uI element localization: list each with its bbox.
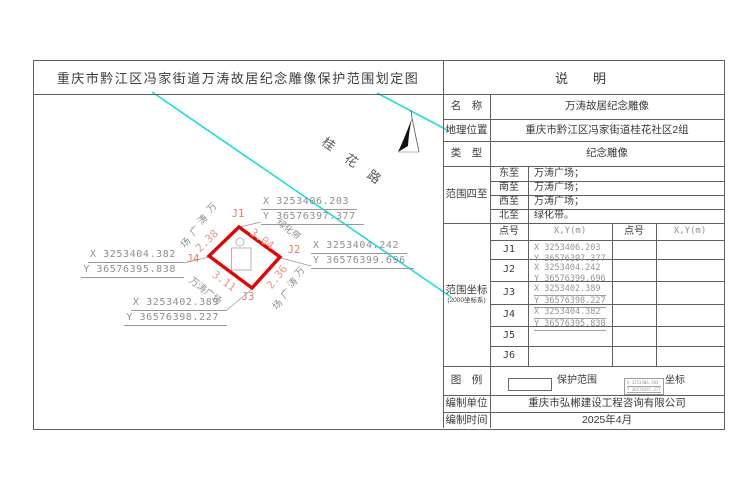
row-label-location: 地理位置 bbox=[443, 119, 490, 141]
value-date: 2025年4月 bbox=[490, 412, 724, 428]
coords-xy-j3-x: X 3253402.389 bbox=[534, 284, 606, 296]
coords-header-point1: 点号 bbox=[490, 223, 528, 240]
map-point-label-j1: J1 bbox=[232, 208, 245, 220]
legend-coordinate-label: 坐标 bbox=[660, 366, 690, 395]
coords-point-id-j1: J1 bbox=[490, 240, 528, 259]
bounds-value-west: 万涛广场； bbox=[528, 195, 724, 209]
coords-point-id-j6: J6 bbox=[490, 346, 528, 366]
coords-label-sub: (2000坐标系) bbox=[447, 297, 485, 304]
legend-protection-label: 保护范围 bbox=[552, 366, 602, 395]
map-point-label-j2: J2 bbox=[288, 244, 301, 256]
callout-j1-x: X 3253406.203 bbox=[261, 197, 357, 210]
row-label-author: 编制单位 bbox=[443, 395, 490, 412]
drawing-sheet: 重庆市黔江区冯家街道万涛故居纪念雕像保护范围划定图 桂花路 绿化带 bbox=[0, 0, 756, 482]
bounds-value-east: 万涛广场； bbox=[528, 166, 724, 181]
bounds-dir-east: 东至 bbox=[490, 166, 528, 181]
coords-xy-j4-y: Y 36576395.838 bbox=[534, 319, 606, 331]
bounds-dir-south: 南至 bbox=[490, 181, 528, 195]
callout-j3-y: Y 36576398.227 bbox=[124, 313, 227, 326]
callout-j1-y: Y 36576397.377 bbox=[261, 212, 364, 225]
value-name: 万涛故居纪念雕像 bbox=[490, 94, 724, 119]
coords-xy-j4: X 3253404.382 Y 36576395.838 bbox=[534, 307, 606, 331]
coords-label-main: 范围坐标 bbox=[446, 284, 488, 296]
coords-xy-j2-x: X 3253404.242 bbox=[534, 263, 606, 274]
value-author: 重庆市弘郴建设工程咨询有限公司 bbox=[490, 395, 724, 412]
coords-xy-j4-x: X 3253404.382 bbox=[534, 307, 606, 319]
coords-xy-j3: X 3253402.389 Y 36576398.227 bbox=[534, 284, 606, 308]
callout-j3-x: X 3253402.389 bbox=[131, 298, 227, 311]
legend-protection-swatch bbox=[508, 378, 552, 391]
callout-j2: X 3253404.242 Y 36576399.696 bbox=[311, 241, 414, 271]
coords-point-id-j5: J5 bbox=[490, 326, 528, 346]
callout-j4: X 3253404.382 Y 36576395.838 bbox=[81, 250, 184, 280]
value-type: 纪念雕像 bbox=[490, 141, 724, 166]
callout-j4-y: Y 36576395.838 bbox=[81, 265, 184, 278]
coords-xy-j2: X 3253404.242 Y 36576399.696 bbox=[534, 263, 606, 285]
bounds-value-north: 绿化带。 bbox=[528, 209, 724, 223]
map-point-label-j3: J3 bbox=[242, 291, 255, 303]
map-point-label-j4: J4 bbox=[187, 253, 200, 265]
callout-j3: X 3253402.389 Y 36576398.227 bbox=[124, 298, 227, 328]
value-location: 重庆市黔江区冯家街道桂花社区2组 bbox=[490, 119, 724, 141]
table-header: 说 明 bbox=[443, 60, 724, 94]
row-label-type: 类 型 bbox=[443, 141, 490, 166]
callout-j1: X 3253406.203 Y 36576397.377 bbox=[261, 197, 364, 227]
coords-xy-j1: X 3253406.203 Y 36576397.377 bbox=[534, 243, 606, 265]
row-label-bounds: 范围四至 bbox=[443, 166, 490, 223]
coords-xy-j1-x: X 3253406.203 bbox=[534, 243, 606, 254]
bounds-dir-north: 北至 bbox=[490, 209, 528, 223]
bounds-value-south: 万涛广场； bbox=[528, 181, 724, 195]
callout-j4-x: X 3253404.382 bbox=[88, 250, 184, 263]
row-label-date: 编制时间 bbox=[443, 412, 490, 428]
bounds-dir-west: 西至 bbox=[490, 195, 528, 209]
legend-sample-y: Y 36576397.377 bbox=[627, 387, 661, 394]
coords-point-id-j2: J2 bbox=[490, 259, 528, 281]
legend-sample-x: X 3253406.203 bbox=[627, 380, 661, 387]
callout-j2-y: Y 36576399.696 bbox=[311, 256, 414, 269]
grid-line bbox=[656, 223, 657, 366]
callout-j2-x: X 3253404.242 bbox=[311, 241, 407, 254]
coords-header-xy2: X,Y(m) bbox=[656, 223, 724, 240]
legend-coordinate-sample: X 3253406.203 Y 36576397.377 bbox=[624, 378, 664, 395]
coords-point-id-j4: J4 bbox=[490, 304, 528, 326]
grid-line bbox=[612, 223, 613, 366]
coords-header-xy1: X,Y(m) bbox=[528, 223, 612, 240]
row-label-legend: 图 例 bbox=[443, 366, 490, 395]
row-label-name: 名 称 bbox=[443, 94, 490, 119]
row-label-coords: 范围坐标 (2000坐标系) bbox=[443, 223, 490, 366]
coords-point-id-j3: J3 bbox=[490, 281, 528, 304]
coords-header-point2: 点号 bbox=[612, 223, 656, 240]
